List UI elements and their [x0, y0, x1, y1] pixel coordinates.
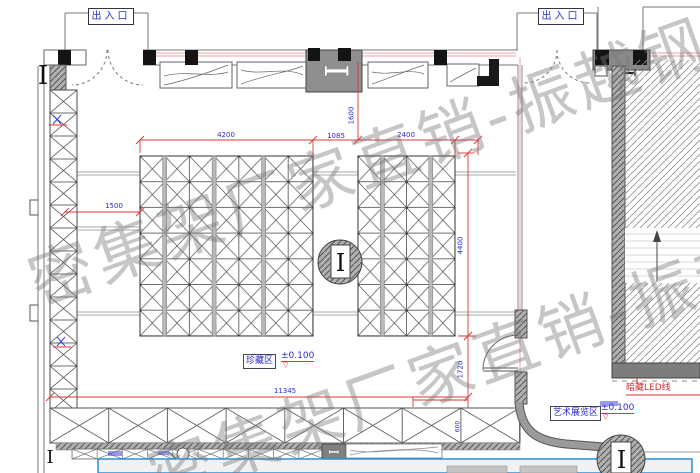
- level-triangle-treasure: ▽: [283, 362, 288, 369]
- entrance-label-right: 出入口: [538, 8, 584, 25]
- left-wall: [30, 66, 44, 473]
- bottom-ibeam-box: I: [322, 444, 346, 459]
- dim-1500: 1500: [84, 202, 144, 211]
- left-corner-column: [58, 50, 71, 65]
- dim-4200: 4200: [196, 131, 256, 140]
- bottom-column: I: [597, 435, 645, 473]
- top-ibeam-column: I: [306, 48, 362, 92]
- left-pier-hatch: [50, 65, 66, 90]
- dim-1085: 1085: [318, 132, 354, 141]
- bottom-box-glyph: I: [325, 449, 340, 454]
- plan-linework: I I I: [0, 0, 700, 473]
- corner-bracket: [477, 59, 499, 86]
- center-column-glyph: I: [336, 249, 345, 277]
- tiny-annotation: [158, 451, 169, 455]
- dim-4400: 4400: [457, 231, 466, 261]
- floor-plan: I I I: [0, 0, 700, 473]
- bottom-column-glyph: I: [617, 446, 626, 473]
- entrance-label-left: 出入口: [88, 8, 134, 25]
- dim-1600: 1600: [348, 101, 357, 131]
- shelving-block-left: [140, 156, 313, 336]
- shelving-block-right: [358, 156, 455, 336]
- tiny-annotation: [600, 401, 618, 406]
- tiny-annotation: [108, 451, 122, 456]
- dim-600: 600: [454, 412, 463, 442]
- dim-11345: 11345: [255, 387, 315, 396]
- dim-2400: 2400: [380, 131, 432, 140]
- led-annotation: 暗藏LED线: [626, 383, 671, 393]
- ibeam-glyph: I: [317, 65, 355, 78]
- area-label-treasure: 珍藏区: [243, 354, 276, 369]
- dim-1720: 1720: [457, 355, 466, 385]
- level-triangle-art: ▽: [603, 414, 608, 421]
- left-top-ibeam: I: [38, 61, 48, 91]
- wavy-panel: [346, 444, 442, 458]
- left-bottom-ibeam: I: [46, 447, 53, 468]
- center-column: I: [318, 240, 362, 284]
- area-label-art: 艺术展览区: [550, 406, 601, 421]
- truss-walkway: [50, 408, 520, 443]
- left-x-strip: [50, 90, 77, 410]
